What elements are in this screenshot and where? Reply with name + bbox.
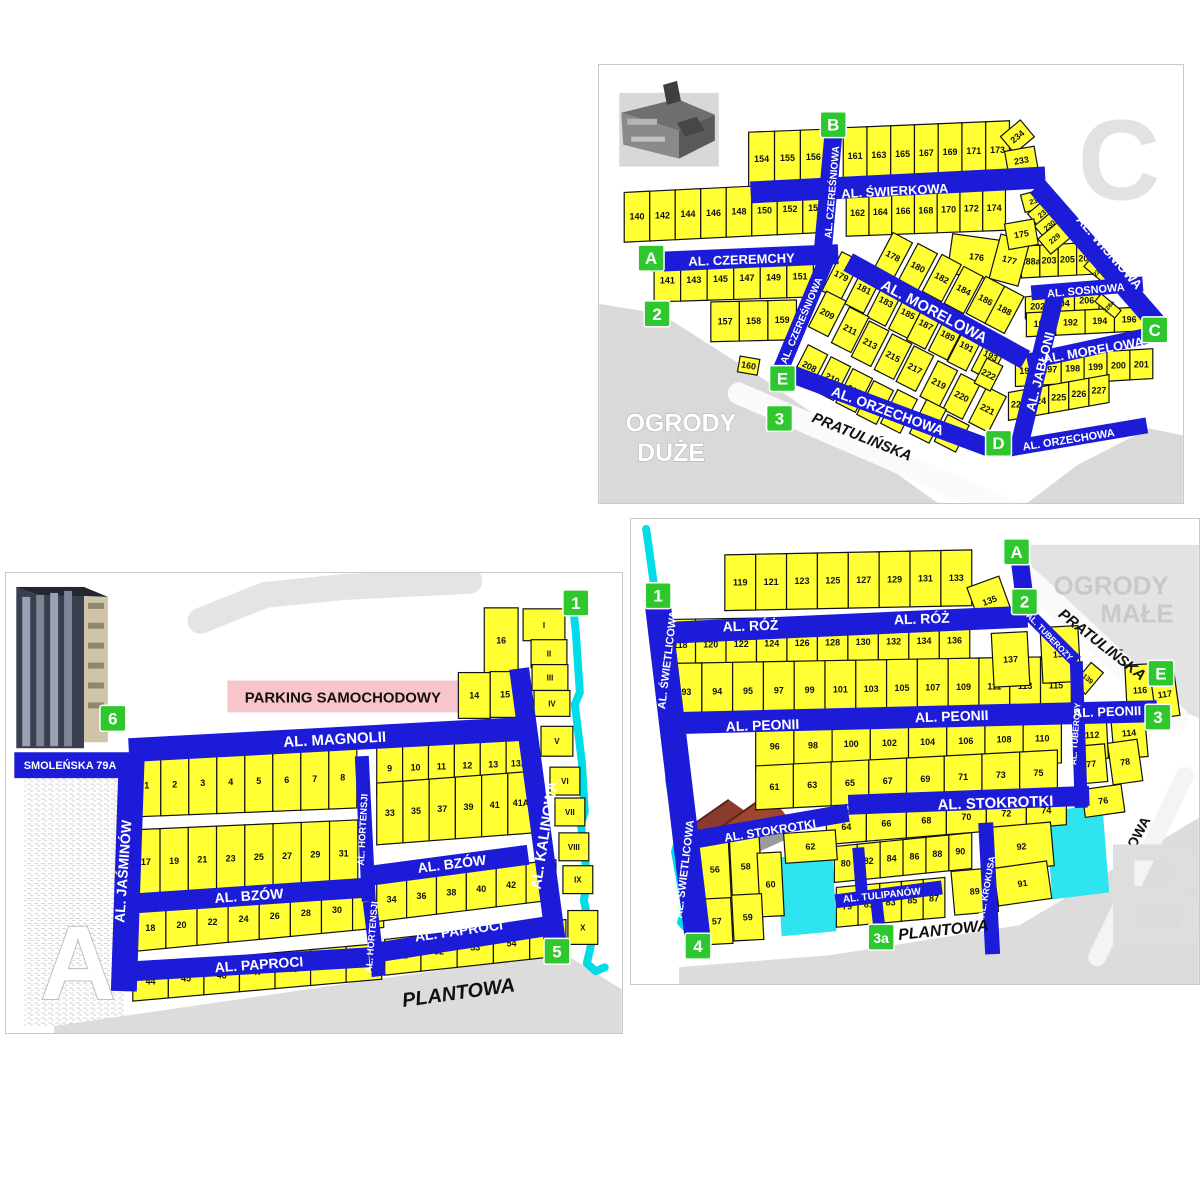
plot-number: 112 bbox=[1085, 730, 1100, 741]
marker-B: B bbox=[820, 112, 846, 138]
plot-number: 196 bbox=[1122, 315, 1137, 325]
plot-number: 80 bbox=[841, 858, 851, 868]
plot-number: 170 bbox=[941, 204, 956, 214]
plot-number: 127 bbox=[856, 575, 871, 585]
plot-number: 57 bbox=[712, 916, 722, 927]
plot: 91 bbox=[993, 861, 1052, 906]
plot-number: 143 bbox=[686, 275, 701, 285]
plot-number: 2 bbox=[172, 779, 177, 789]
plot-number: 123 bbox=[795, 576, 810, 586]
map-section-c: 1541551561611631651671691711731401421441… bbox=[598, 64, 1184, 504]
plot-number: 34 bbox=[387, 895, 397, 905]
plot-number: 134 bbox=[917, 636, 932, 646]
plot-number: 14 bbox=[469, 690, 479, 700]
garden-map-page: { "colors": { "plot_yellow": "#ffff33", … bbox=[0, 0, 1200, 1200]
plot-number: V bbox=[554, 737, 560, 746]
plot-number: 76 bbox=[1098, 795, 1109, 806]
plot-number: 101 bbox=[833, 684, 848, 694]
plot: 16 bbox=[484, 608, 518, 674]
plot: VIII bbox=[559, 833, 589, 861]
street-label: AL. RÓŻ bbox=[894, 609, 951, 628]
plot-number: 30 bbox=[332, 905, 342, 915]
plot-number: 130 bbox=[856, 637, 871, 647]
plot-number: 70 bbox=[961, 812, 971, 822]
plot-number: 155 bbox=[780, 153, 795, 163]
marker-A: A bbox=[638, 245, 664, 271]
marker-3a: 3a bbox=[868, 924, 894, 950]
water-area-left bbox=[778, 852, 837, 937]
plot-number: 110 bbox=[1035, 734, 1049, 744]
plot-number: 146 bbox=[706, 208, 721, 218]
plot-number: 42 bbox=[506, 880, 516, 890]
plot-number: 37 bbox=[437, 804, 447, 814]
marker-E: E bbox=[1148, 660, 1174, 686]
plot-number: 33 bbox=[385, 808, 395, 818]
marker-1: 1 bbox=[563, 590, 589, 616]
plot-number: 104 bbox=[920, 737, 935, 747]
svg-text:3: 3 bbox=[1153, 708, 1162, 727]
plot-number: 129 bbox=[887, 574, 902, 584]
plot-number: 62 bbox=[805, 841, 816, 852]
marker-D: D bbox=[986, 430, 1012, 456]
plot-number: 151 bbox=[793, 271, 808, 281]
svg-text:2: 2 bbox=[1020, 593, 1029, 612]
plot-number: 154 bbox=[754, 154, 769, 164]
area-label-male: MAŁE bbox=[1100, 601, 1173, 629]
plot-number: 162 bbox=[850, 208, 865, 218]
plot-number: 133 bbox=[949, 573, 964, 583]
plot: 14 bbox=[458, 673, 490, 719]
map-a-svg: 1234567891011121313A17192123252729313335… bbox=[6, 573, 622, 1033]
plot-number: IX bbox=[574, 876, 582, 885]
plot-number: 13 bbox=[488, 760, 498, 770]
plot-number: 1 bbox=[144, 781, 149, 791]
plot-number: 100 bbox=[844, 739, 859, 749]
plot-number: 40 bbox=[476, 884, 486, 894]
marker-2: 2 bbox=[1012, 589, 1038, 615]
svg-text:C: C bbox=[1149, 321, 1161, 340]
plot-number: 67 bbox=[883, 776, 893, 786]
plot-number: 203 bbox=[1042, 256, 1057, 266]
plot-number: 152 bbox=[783, 204, 798, 214]
plot: IX bbox=[563, 866, 593, 894]
plot-number: 136 bbox=[947, 636, 962, 646]
plot-number: 69 bbox=[920, 774, 930, 784]
plot-number: II bbox=[547, 650, 551, 659]
marker-A: A bbox=[1004, 539, 1030, 565]
svg-text:6: 6 bbox=[108, 709, 117, 728]
svg-text:1: 1 bbox=[571, 594, 580, 613]
plot-number: 71 bbox=[958, 772, 968, 782]
plot-number: 131 bbox=[918, 574, 933, 584]
plot-number: 8 bbox=[340, 773, 345, 783]
plot-number: 125 bbox=[825, 576, 840, 586]
plot-number: 91 bbox=[1017, 878, 1028, 889]
plot-number: 126 bbox=[795, 638, 810, 648]
svg-text:5: 5 bbox=[552, 942, 561, 961]
plot-number: 149 bbox=[766, 272, 781, 282]
marker-1: 1 bbox=[645, 583, 671, 609]
plot-number: 192 bbox=[1063, 318, 1078, 328]
plot-number: 12 bbox=[462, 761, 472, 771]
plot-number: 20 bbox=[176, 920, 186, 930]
plot-number: 171 bbox=[966, 146, 981, 156]
plot-number: 75 bbox=[1034, 768, 1044, 778]
plot-number: 78 bbox=[1119, 756, 1130, 767]
map-section-a: 1234567891011121313A17192123252729313335… bbox=[5, 572, 623, 1034]
svg-text:4: 4 bbox=[693, 937, 703, 956]
plot-number: 144 bbox=[681, 209, 696, 219]
plot-number: 159 bbox=[775, 315, 790, 325]
plot-number: 227 bbox=[1091, 385, 1106, 395]
plot-number: IV bbox=[548, 699, 556, 708]
svg-text:A: A bbox=[1010, 543, 1022, 562]
plot-number: 168 bbox=[918, 205, 933, 215]
marker-4: 4 bbox=[685, 933, 711, 959]
marker-6: 6 bbox=[100, 705, 126, 731]
plot-number: 58 bbox=[740, 861, 750, 872]
plot-number: 161 bbox=[848, 151, 863, 161]
plot-number: 117 bbox=[1157, 688, 1173, 700]
plot-number: 137 bbox=[1003, 654, 1018, 665]
plot-number: 108 bbox=[997, 735, 1012, 745]
plot-number: 89 bbox=[969, 886, 980, 897]
marker-2: 2 bbox=[644, 301, 670, 327]
plot-number: 10 bbox=[411, 763, 421, 773]
plot-number: 124 bbox=[764, 639, 779, 649]
plot-number: 97 bbox=[774, 685, 784, 695]
plot-number: 73 bbox=[996, 770, 1006, 780]
plot-number: 225 bbox=[1051, 392, 1066, 402]
plot-number: 90 bbox=[955, 847, 965, 857]
plot-number: 25 bbox=[254, 852, 264, 862]
svg-text:3a: 3a bbox=[873, 930, 889, 946]
watermark-b: B bbox=[1103, 812, 1199, 979]
plot-number: 158 bbox=[746, 316, 761, 326]
plot-number: 35 bbox=[411, 806, 421, 816]
plot-number: 96 bbox=[770, 741, 780, 751]
plot-number: 164 bbox=[873, 207, 888, 217]
plot-number: X bbox=[580, 923, 586, 932]
plot-number: 41 bbox=[490, 800, 500, 810]
plot-number: 88 bbox=[932, 849, 942, 859]
area-label-ogrody: OGRODY bbox=[626, 409, 737, 437]
plot-number: 99 bbox=[805, 685, 815, 695]
plot-number: 165 bbox=[895, 149, 910, 159]
svg-text:3: 3 bbox=[775, 409, 784, 428]
plot: 59 bbox=[732, 894, 764, 941]
plot-number: 98 bbox=[808, 740, 818, 750]
svg-text:E: E bbox=[777, 370, 788, 389]
plot-number: 132 bbox=[886, 637, 901, 647]
svg-text:A: A bbox=[645, 249, 657, 268]
plot: II bbox=[531, 640, 567, 668]
plot-number: 77 bbox=[1086, 759, 1097, 770]
plot: I bbox=[523, 609, 565, 641]
plot: 137 bbox=[991, 632, 1030, 688]
plot-number: 128 bbox=[825, 638, 840, 648]
plot-number: 121 bbox=[764, 577, 779, 587]
plot-number: 102 bbox=[882, 738, 897, 748]
plot-number: 106 bbox=[958, 736, 973, 746]
plot-number: 176 bbox=[969, 251, 985, 263]
plot: 160 bbox=[737, 356, 759, 375]
plot-number: 107 bbox=[925, 683, 940, 693]
plot-number: 16 bbox=[496, 636, 506, 646]
plot-number: 11 bbox=[437, 762, 446, 772]
plot-number: 114 bbox=[1121, 727, 1136, 738]
plot-number: 95 bbox=[743, 686, 753, 696]
plot-number: 65 bbox=[845, 778, 855, 788]
plot-number: 63 bbox=[807, 780, 817, 790]
plot-number: 17 bbox=[141, 857, 151, 867]
svg-text:D: D bbox=[992, 434, 1004, 453]
plot-number: 150 bbox=[757, 205, 772, 215]
plot-number: 22 bbox=[208, 917, 218, 927]
map-c-svg: 1541551561611631651671691711731401421441… bbox=[599, 65, 1183, 503]
plot-number: III bbox=[547, 674, 554, 683]
plot-number: 6 bbox=[284, 775, 289, 785]
plot-number: 145 bbox=[713, 274, 728, 284]
plot-number: 94 bbox=[712, 686, 722, 696]
plot-number: 109 bbox=[956, 682, 971, 692]
plot-number: 38 bbox=[446, 887, 456, 897]
plot-number: 64 bbox=[841, 822, 851, 832]
plot-number: 147 bbox=[740, 273, 755, 283]
map-b-svg: 1191211231251271291311331181201221241261… bbox=[631, 519, 1199, 984]
plot-number: VII bbox=[565, 808, 575, 817]
street-label: AL. PEONII bbox=[1073, 703, 1142, 720]
plot-number: 163 bbox=[871, 150, 886, 160]
plot-number: 167 bbox=[919, 148, 934, 158]
street-label: AL. RÓŻ bbox=[722, 616, 779, 635]
plot-number: VIII bbox=[568, 843, 580, 852]
plot-number: 9 bbox=[387, 764, 392, 774]
marker-3: 3 bbox=[1145, 704, 1171, 730]
plot-number: VI bbox=[561, 777, 569, 786]
plot-number: 169 bbox=[943, 147, 958, 157]
plot-number: 84 bbox=[887, 854, 897, 864]
church-photo bbox=[619, 81, 719, 167]
plot-number: 28 bbox=[301, 908, 311, 918]
marker-5: 5 bbox=[544, 938, 570, 964]
plot-number: 39 bbox=[464, 802, 474, 812]
plot-number: 60 bbox=[765, 879, 775, 890]
plot-number: 198 bbox=[1065, 363, 1080, 373]
plot-number: 15 bbox=[500, 689, 510, 699]
svg-text:E: E bbox=[1155, 664, 1166, 683]
plot-number: 59 bbox=[742, 912, 752, 923]
street-label: AL. PEONII bbox=[915, 707, 989, 726]
plot-number: 86 bbox=[910, 851, 920, 861]
plot-number: 141 bbox=[660, 276, 675, 286]
plot-number: 19 bbox=[169, 856, 179, 866]
plot-number: 105 bbox=[895, 683, 910, 693]
plot-number: 29 bbox=[310, 850, 320, 860]
plot-number: 23 bbox=[226, 853, 236, 863]
plot-number: 172 bbox=[964, 204, 979, 214]
marker-E: E bbox=[770, 366, 796, 392]
area-label-ogrody: OGRODY bbox=[1054, 573, 1169, 601]
svg-text:1: 1 bbox=[653, 587, 662, 606]
plot: III bbox=[532, 665, 568, 691]
plot-number: 21 bbox=[197, 855, 207, 865]
svg-text:B: B bbox=[827, 116, 839, 135]
parking-label: PARKING SAMOCHODOWY bbox=[245, 689, 441, 706]
plot-number: 5 bbox=[256, 776, 261, 786]
plot-number: 194 bbox=[1092, 316, 1107, 326]
plot-number: 93 bbox=[681, 687, 691, 697]
plot: X bbox=[568, 911, 598, 945]
plot-number: 201 bbox=[1134, 359, 1149, 369]
plot-number: 157 bbox=[718, 316, 733, 326]
plot-number: 156 bbox=[806, 152, 821, 162]
watermark-c: C bbox=[1078, 96, 1161, 224]
plot-number: 4 bbox=[228, 777, 233, 787]
street-label: AL. PEONII bbox=[725, 716, 799, 735]
plot-number: 61 bbox=[770, 782, 780, 792]
plot-number: 116 bbox=[1133, 685, 1148, 696]
plot-number: 26 bbox=[270, 911, 280, 921]
plot-number: 31 bbox=[339, 848, 349, 858]
plot-number: 166 bbox=[896, 206, 911, 216]
plot-number: 173 bbox=[990, 145, 1005, 155]
plot-number: 3 bbox=[200, 778, 205, 788]
plot-number: 68 bbox=[921, 815, 931, 825]
plot-number: 200 bbox=[1111, 361, 1126, 371]
plot-number: 199 bbox=[1088, 362, 1103, 372]
plot: 62 bbox=[784, 830, 838, 863]
watermark-a: A bbox=[40, 905, 116, 1022]
plot-number: 36 bbox=[417, 891, 427, 901]
area-label-duze: DUŻE bbox=[637, 439, 705, 467]
plot-number: 92 bbox=[1016, 841, 1027, 852]
marker-3: 3 bbox=[767, 405, 793, 431]
plot-number: 27 bbox=[282, 851, 292, 861]
plot-number: 226 bbox=[1071, 389, 1086, 399]
plot-number: 103 bbox=[864, 684, 879, 694]
plot-number: 174 bbox=[987, 203, 1002, 213]
plot: VII bbox=[555, 798, 585, 826]
plot-number: I bbox=[543, 621, 545, 630]
plot: 78 bbox=[1107, 739, 1142, 785]
plot-number: 140 bbox=[630, 212, 645, 222]
background-road bbox=[200, 581, 469, 621]
plot: V bbox=[541, 726, 573, 756]
street-label: SMOLEŃSKA 79A bbox=[24, 759, 117, 772]
plot-number: 66 bbox=[881, 819, 891, 829]
marker-C: C bbox=[1142, 317, 1168, 343]
plot-number: 7 bbox=[312, 774, 317, 784]
plot-number: 205 bbox=[1060, 255, 1075, 265]
plot-number: 56 bbox=[710, 864, 720, 875]
svg-text:2: 2 bbox=[652, 305, 661, 324]
plot: IV bbox=[534, 690, 570, 716]
plot-number: 24 bbox=[239, 914, 249, 924]
plot: 175 bbox=[1004, 219, 1038, 250]
plot-number: 18 bbox=[145, 923, 155, 933]
plot-number: 122 bbox=[734, 639, 749, 649]
map-section-b: 1191211231251271291311331181201221241261… bbox=[630, 518, 1200, 985]
plot-number: 142 bbox=[655, 210, 670, 220]
plot-number: 119 bbox=[733, 577, 747, 587]
tower-photo bbox=[16, 587, 108, 748]
plot-number: 148 bbox=[732, 207, 747, 217]
